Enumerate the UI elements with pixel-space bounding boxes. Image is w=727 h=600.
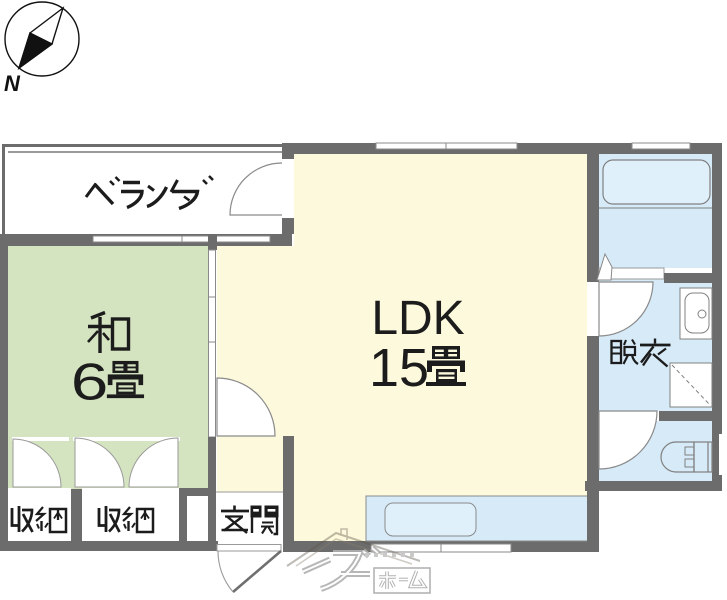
svg-text:6: 6 [71, 352, 109, 411]
svg-text:N: N [4, 71, 21, 96]
svg-text:15: 15 [369, 338, 429, 398]
